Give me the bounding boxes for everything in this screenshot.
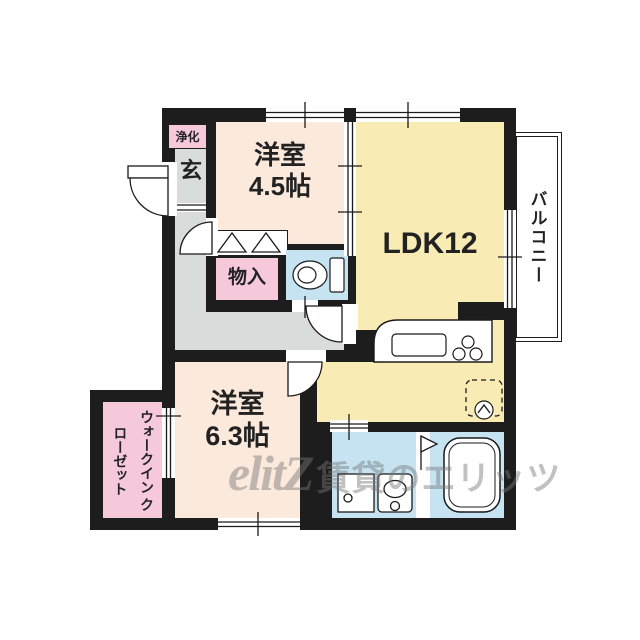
watermark-text: 賃貸のエリッツ (316, 451, 561, 500)
room1-label: 洋室 4.5帖 (216, 140, 344, 202)
room-ldk-main (356, 122, 504, 422)
septic-label-box: 浄化 (168, 124, 207, 149)
balcony-inner-rail: バルコニー (516, 136, 558, 338)
room2-name: 洋室 (211, 388, 265, 420)
room-ldk-lower (317, 362, 356, 422)
wic-label: ウォークイン クローゼット (106, 406, 160, 516)
closet-doors-strip (212, 230, 288, 256)
room-corridor (206, 312, 344, 350)
wic-label-line1: ウォークイン (139, 410, 155, 494)
storage-label: 物入 (216, 267, 278, 290)
room-toilet (286, 250, 348, 300)
balcony-area: バルコニー (512, 132, 562, 342)
septic-label: 浄化 (175, 128, 199, 145)
floorplan-page: { "watermark": { "logo": "elitZ", "text"… (0, 0, 640, 640)
room1-name: 洋室 (254, 140, 306, 171)
watermark: elitZ 賃貸のエリッツ (228, 444, 561, 502)
entrance-label: 玄 (176, 158, 206, 184)
ldk-label: LDK12 (360, 226, 500, 262)
balcony-label: バルコニー (525, 190, 550, 285)
room1-size: 4.5帖 (249, 171, 311, 202)
watermark-logo: elitZ (228, 444, 312, 502)
